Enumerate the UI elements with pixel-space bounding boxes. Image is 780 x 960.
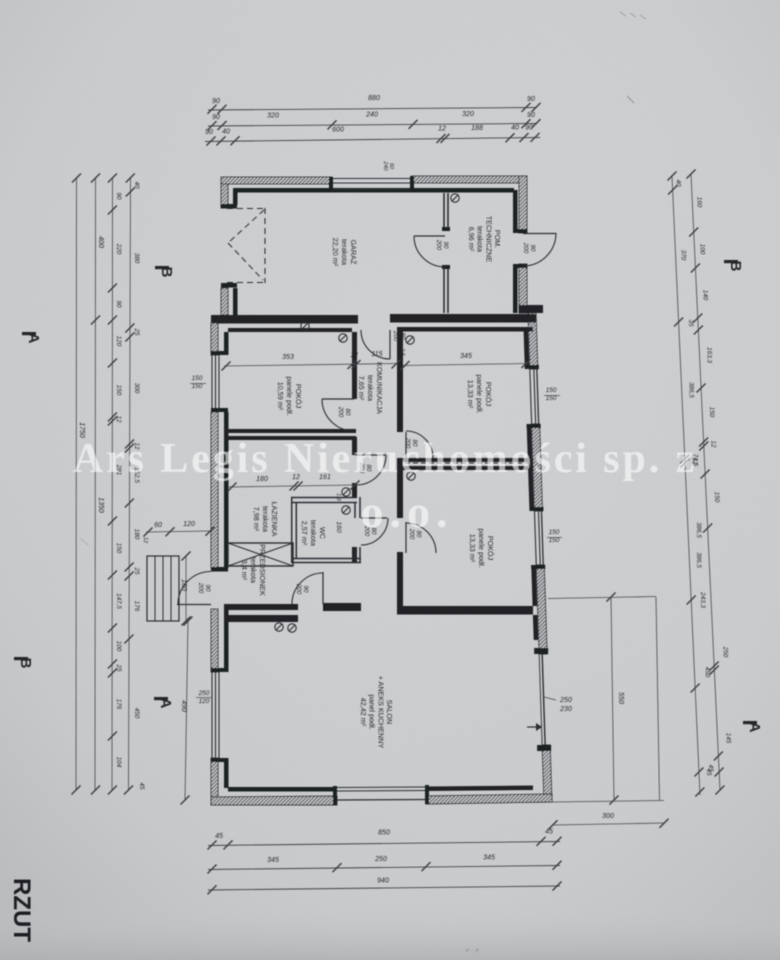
svg-text:· ∨ · ∧: · ∨ · ∧ [461, 948, 479, 954]
svg-text:40: 40 [511, 125, 519, 132]
svg-text:PRZEDSIONEK: PRZEDSIONEK [258, 544, 267, 596]
svg-text:150: 150 [549, 537, 560, 544]
svg-text:176: 176 [115, 699, 122, 710]
svg-text:12: 12 [710, 440, 717, 448]
svg-text:150: 150 [708, 407, 715, 418]
svg-text:120: 120 [183, 521, 195, 528]
svg-text:TECHNICZNE: TECHNICZNE [484, 216, 493, 263]
svg-text:250: 250 [374, 856, 387, 863]
svg-text:10,59 m²: 10,59 m² [276, 382, 285, 411]
svg-text:120: 120 [199, 698, 210, 705]
svg-text:353: 353 [282, 354, 294, 361]
svg-text:386,5: 386,5 [688, 382, 695, 398]
svg-text:150: 150 [192, 375, 203, 382]
svg-text:450: 450 [133, 708, 140, 719]
svg-text:176: 176 [133, 601, 140, 612]
svg-text:40: 40 [133, 181, 140, 189]
svg-text:150: 150 [713, 492, 720, 503]
svg-text:ŁAZIENKA: ŁAZIENKA [270, 502, 279, 537]
svg-text:WC: WC [318, 527, 327, 539]
svg-text:SALON: SALON [385, 700, 394, 724]
svg-text:320: 320 [462, 111, 474, 118]
svg-text:80: 80 [399, 333, 406, 340]
svg-text:45: 45 [138, 782, 145, 790]
svg-text:150: 150 [546, 395, 557, 402]
svg-text:115: 115 [371, 351, 382, 358]
svg-text:200: 200 [392, 330, 399, 342]
svg-text:A: A [157, 698, 174, 709]
svg-text:B: B [727, 261, 744, 272]
svg-text:90: 90 [527, 96, 535, 103]
svg-text:90: 90 [529, 245, 536, 252]
svg-text:13,33 m²: 13,33 m² [468, 534, 477, 563]
svg-text:POM.: POM. [493, 230, 502, 248]
svg-text:250: 250 [559, 697, 572, 704]
svg-text:180: 180 [133, 529, 140, 540]
svg-text:240: 240 [365, 112, 378, 119]
svg-text:400: 400 [97, 236, 104, 248]
svg-text:2,57 m²: 2,57 m² [300, 521, 309, 546]
svg-text:850: 850 [378, 830, 390, 837]
svg-text:320: 320 [267, 113, 279, 120]
svg-text:230: 230 [559, 706, 572, 713]
svg-text:60: 60 [154, 522, 162, 529]
svg-text:80: 80 [344, 409, 351, 416]
svg-text:13,33 m²: 13,33 m² [466, 380, 475, 409]
svg-text:200: 200 [522, 242, 529, 254]
svg-text:35: 35 [687, 319, 694, 327]
svg-text:600: 600 [332, 127, 344, 134]
svg-text:370: 370 [680, 250, 687, 261]
svg-text:243,3: 243,3 [699, 591, 706, 608]
svg-text:12: 12 [142, 537, 148, 543]
svg-text:200: 200 [337, 406, 344, 418]
svg-text:40: 40 [222, 129, 230, 136]
svg-text:940: 940 [377, 878, 389, 885]
svg-text:180: 180 [180, 579, 187, 591]
svg-text:panele podł.: panele podł. [477, 528, 486, 567]
svg-text:90: 90 [525, 125, 533, 132]
svg-text:345: 345 [460, 353, 472, 360]
svg-text:+ ANEKS KUCHENNY: + ANEKS KUCHENNY [376, 676, 385, 749]
svg-text:100: 100 [699, 244, 706, 255]
svg-text:KOMUNIKACJA: KOMUNIKACJA [375, 362, 384, 414]
svg-text:90: 90 [204, 585, 211, 592]
svg-text:45: 45 [705, 768, 712, 776]
svg-text:104: 104 [115, 757, 122, 768]
svg-text:2,5: 2,5 [399, 347, 405, 357]
svg-text:386,5: 386,5 [695, 522, 702, 538]
svg-text:GARAŻ: GARAŻ [349, 240, 358, 265]
svg-text:150: 150 [115, 385, 122, 396]
svg-text:90: 90 [302, 586, 309, 593]
svg-text:25: 25 [133, 327, 140, 336]
svg-text:6,96 m²: 6,96 m² [467, 227, 476, 252]
svg-text:12: 12 [438, 126, 446, 133]
svg-text:Ars Legis Nieruchomości sp. z: Ars Legis Nieruchomości sp. z [73, 436, 697, 482]
svg-text:A: A [746, 722, 763, 733]
svg-text:300: 300 [602, 813, 614, 820]
svg-text:150: 150 [546, 387, 557, 394]
svg-text:1350: 1350 [97, 497, 104, 513]
svg-text:terakota: terakota [249, 557, 258, 583]
svg-text:90: 90 [212, 98, 220, 105]
svg-text:90: 90 [442, 242, 449, 249]
svg-text:terakota: terakota [261, 506, 270, 532]
svg-text:160: 160 [695, 197, 702, 208]
svg-text:40: 40 [674, 179, 681, 187]
svg-text:120: 120 [115, 336, 122, 347]
svg-text:POKÓJ: POKÓJ [486, 536, 495, 561]
svg-text:o.o.: o.o. [361, 486, 454, 537]
svg-text:250: 250 [721, 646, 728, 658]
svg-text:450: 450 [703, 667, 710, 678]
svg-text:100: 100 [115, 641, 122, 652]
svg-text:A: A [25, 333, 42, 344]
svg-text:163,3: 163,3 [706, 347, 713, 363]
svg-text:200: 200 [197, 582, 204, 594]
svg-text:240: 240 [382, 160, 388, 171]
svg-text:490: 490 [180, 700, 187, 712]
svg-text:panele podł.: panele podł. [285, 376, 294, 415]
svg-text:7,65 m²: 7,65 m² [357, 376, 366, 401]
svg-text:386,5: 386,5 [695, 552, 702, 568]
svg-text:B: B [17, 658, 34, 669]
svg-text:220: 220 [115, 243, 122, 255]
svg-text:RZUT: RZUT [8, 878, 35, 942]
svg-text:25: 25 [115, 663, 122, 672]
svg-text:terakota: terakota [476, 226, 485, 252]
svg-text:150: 150 [549, 529, 560, 536]
svg-text:200: 200 [295, 583, 302, 595]
svg-text:90: 90 [205, 129, 213, 136]
svg-text:90: 90 [527, 112, 535, 119]
svg-text:345: 345 [267, 857, 279, 864]
svg-text:147,5: 147,5 [115, 593, 122, 609]
svg-text:250: 250 [198, 690, 210, 697]
svg-text:300: 300 [133, 383, 140, 394]
svg-text:90: 90 [115, 300, 122, 308]
svg-text:terakota: terakota [309, 520, 318, 546]
svg-text:panele podł.: panele podł. [475, 374, 484, 413]
svg-text:terakota: terakota [340, 239, 349, 265]
svg-text:POKÓJ: POKÓJ [484, 382, 493, 407]
svg-text:60: 60 [388, 163, 394, 170]
svg-text:145: 145 [725, 733, 732, 744]
svg-text:880: 880 [368, 95, 380, 102]
svg-text:POKÓJ: POKÓJ [294, 384, 303, 409]
svg-text:550: 550 [617, 692, 624, 704]
svg-text:188: 188 [471, 125, 483, 132]
svg-text:B: B [158, 267, 175, 278]
svg-text:25: 25 [133, 566, 140, 575]
svg-text:150: 150 [192, 383, 203, 390]
svg-text:12: 12 [115, 415, 122, 423]
svg-text:200: 200 [435, 239, 442, 251]
svg-text:345: 345 [483, 855, 495, 862]
svg-text:22,20 m²: 22,20 m² [331, 238, 340, 267]
svg-text:1,9: 1,9 [335, 493, 341, 501]
svg-text:140: 140 [702, 290, 709, 301]
svg-text:42,42 m²: 42,42 m² [359, 698, 368, 727]
svg-text:45: 45 [215, 833, 223, 840]
svg-text:380: 380 [133, 253, 140, 264]
svg-text:panel podł.: panel podł. [368, 694, 377, 729]
svg-text:terakota: terakota [366, 375, 375, 401]
svg-text:12: 12 [350, 352, 358, 359]
svg-text:90: 90 [212, 114, 220, 121]
svg-text:160: 160 [335, 521, 342, 533]
svg-text:3,4 m²: 3,4 m² [240, 560, 249, 581]
svg-text:7,98 m²: 7,98 m² [252, 507, 261, 532]
svg-text:150: 150 [115, 543, 122, 554]
svg-text:90: 90 [115, 192, 122, 200]
